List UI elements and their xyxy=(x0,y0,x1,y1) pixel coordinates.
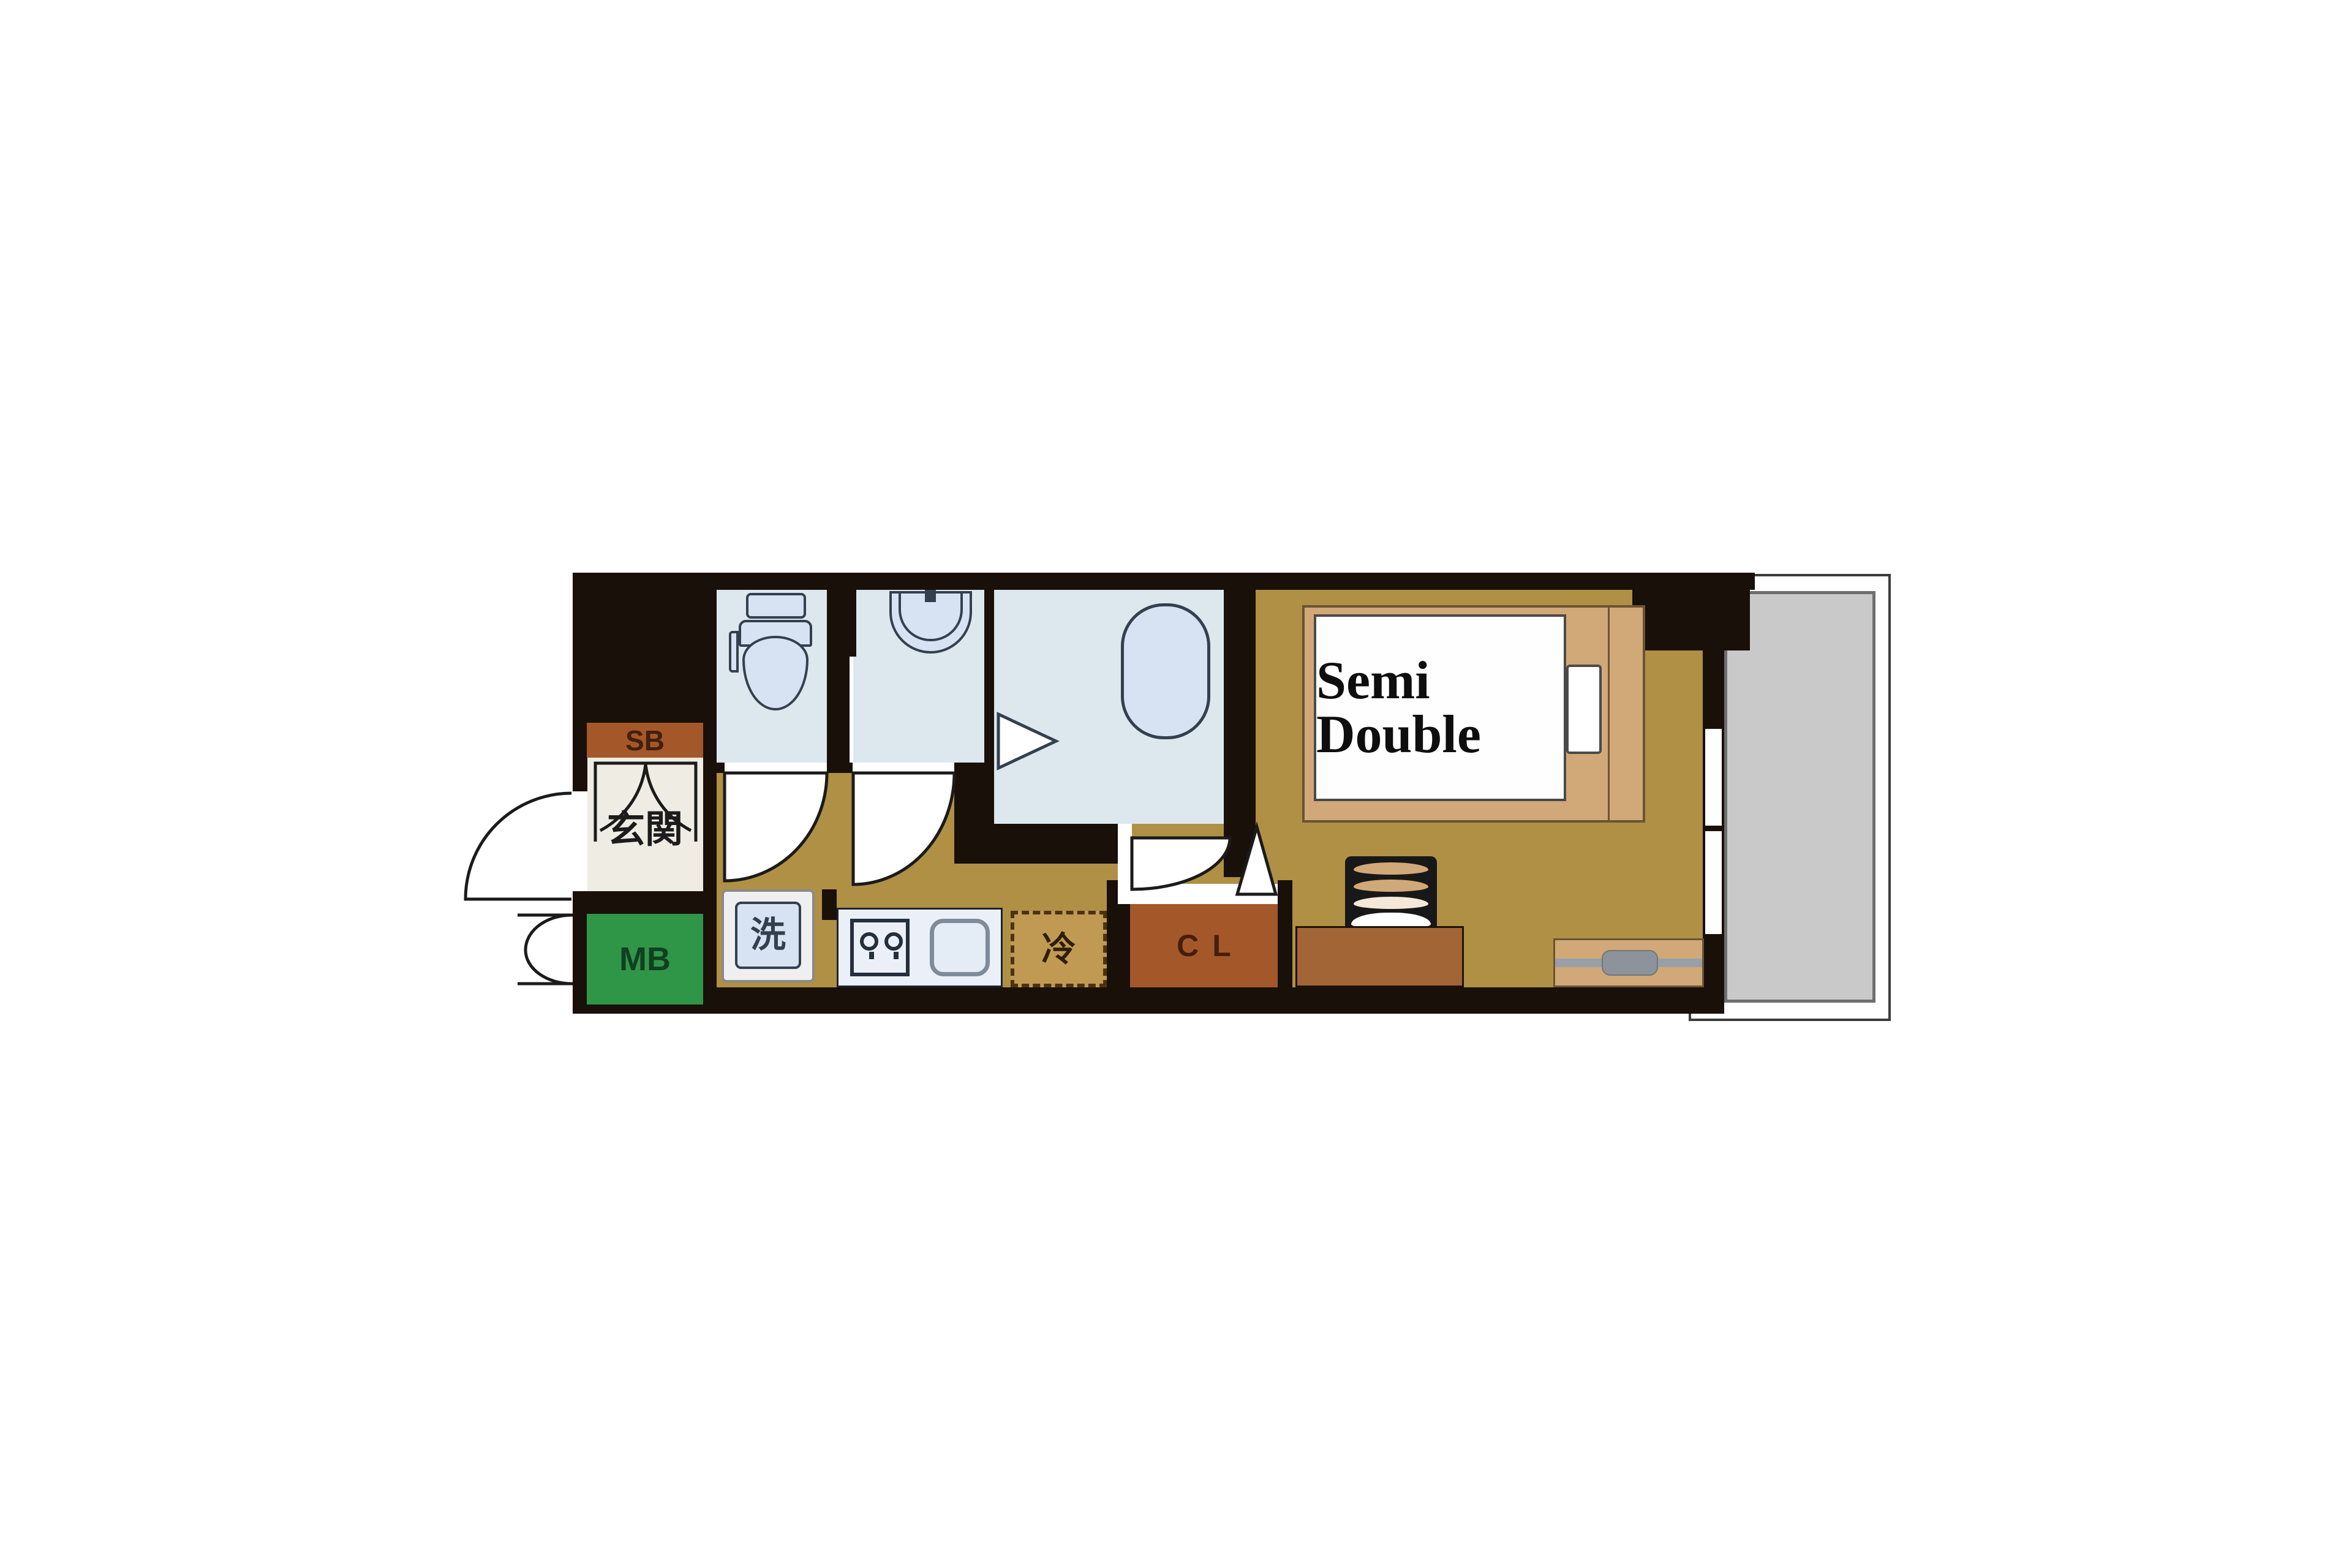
chair-icon xyxy=(1345,856,1437,931)
bathtub-icon xyxy=(1121,603,1210,739)
chair-slat-3 xyxy=(1354,897,1428,909)
window-center-rail xyxy=(1705,826,1722,831)
bed-mattress: Semi Double xyxy=(1314,614,1566,801)
refrigerator-label: 冷 xyxy=(1042,932,1076,967)
burner-left-icon xyxy=(860,932,878,951)
bed-frame-divider xyxy=(1608,605,1610,823)
washing-machine-label: 洗 xyxy=(750,918,786,953)
bed-size-label: Semi Double xyxy=(1316,654,1564,762)
washroom-door-arc-icon xyxy=(853,773,954,884)
sink-faucet-icon xyxy=(925,590,936,602)
door-symbols-layer xyxy=(0,0,2352,1568)
bathroom-door-icon xyxy=(998,714,1056,768)
chair-slat-2 xyxy=(1354,880,1428,892)
burner-left-dot xyxy=(869,952,874,959)
entrance-label: 玄関 xyxy=(587,805,703,854)
room-door-arc-icon xyxy=(1132,838,1230,889)
chair-slat-1 xyxy=(1354,862,1428,875)
kitchen-sink-icon xyxy=(930,919,990,976)
desk-icon xyxy=(1295,926,1464,987)
burner-right-icon xyxy=(884,932,903,951)
burner-right-dot xyxy=(894,952,899,959)
floor-plan: SB 玄関 MB 洗 冷 CL Semi Double xyxy=(0,0,2352,1568)
refrigerator: 冷 xyxy=(1011,911,1107,987)
closet: CL xyxy=(1130,904,1278,987)
pillow-icon xyxy=(1566,665,1602,754)
meter-box-door-top-icon xyxy=(518,915,573,950)
meter-box: MB xyxy=(587,914,703,1005)
tv-board xyxy=(1553,938,1704,987)
entrance-door-arc-icon xyxy=(466,793,571,899)
shoe-box: SB xyxy=(587,723,703,758)
toilet-lever-icon xyxy=(729,631,739,673)
window-glass xyxy=(1705,729,1722,934)
toilet-door-arc-icon xyxy=(725,773,827,881)
room-door-leaf-icon xyxy=(1237,827,1276,894)
entrance-label-text: 玄関 xyxy=(607,811,683,849)
toilet-tank-icon xyxy=(746,593,806,619)
stove-icon xyxy=(850,919,910,976)
meter-box-door-bottom-icon xyxy=(518,950,573,984)
tv-icon xyxy=(1602,950,1658,976)
washing-machine: 洗 xyxy=(735,902,801,969)
meter-box-label: MB xyxy=(619,943,671,976)
closet-label: CL xyxy=(1163,930,1245,961)
shoe-box-label: SB xyxy=(625,726,665,755)
